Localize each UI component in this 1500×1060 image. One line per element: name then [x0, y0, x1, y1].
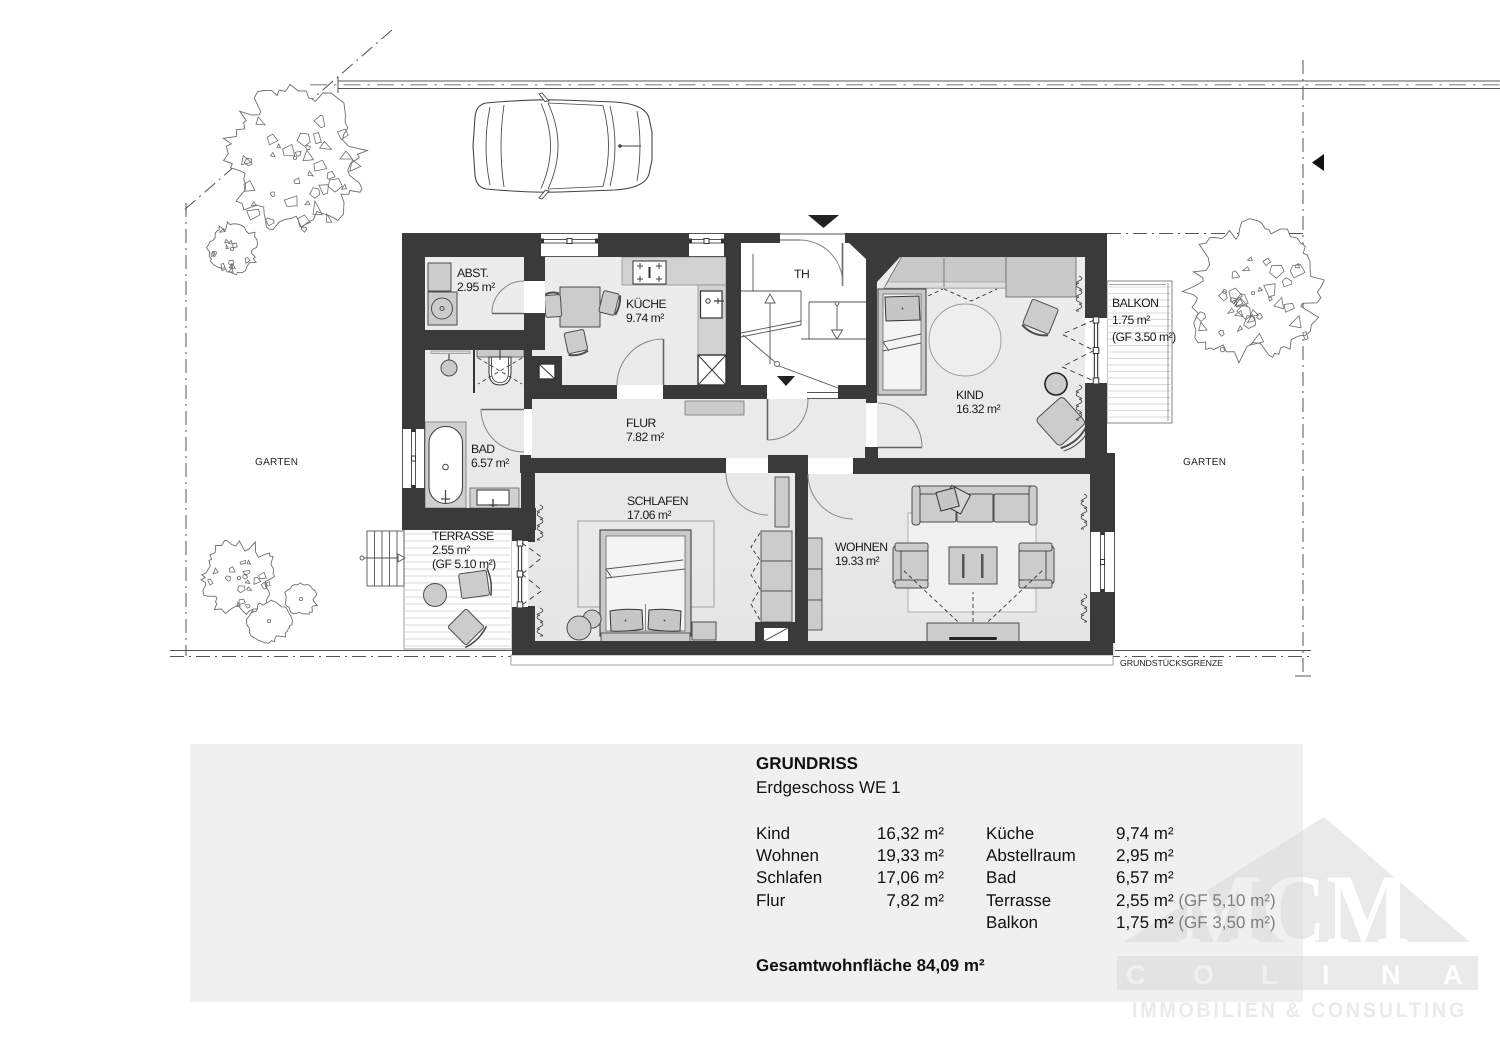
svg-text:9.74 m²: 9.74 m² [626, 311, 664, 325]
svg-text:SCHLAFEN: SCHLAFEN [627, 494, 688, 508]
svg-text:2,95 m²: 2,95 m² [1116, 846, 1174, 865]
svg-text:7.82 m²: 7.82 m² [626, 430, 664, 444]
svg-text:17,06 m²: 17,06 m² [877, 868, 944, 887]
svg-text:GRUNDRISS: GRUNDRISS [756, 754, 858, 773]
svg-text:(GF 3.50 m²): (GF 3.50 m²) [1112, 330, 1176, 344]
svg-text:6,57 m²: 6,57 m² [1116, 868, 1174, 887]
svg-text:2.95 m²: 2.95 m² [457, 280, 495, 294]
svg-text:Abstellraum: Abstellraum [986, 846, 1076, 865]
svg-text:Wohnen: Wohnen [756, 846, 819, 865]
svg-text:Bad: Bad [986, 868, 1016, 887]
svg-text:IMMOBILIEN & CONSULTING: IMMOBILIEN & CONSULTING [1132, 999, 1467, 1022]
svg-text:19.33 m²: 19.33 m² [835, 554, 880, 568]
svg-text:16.32 m²: 16.32 m² [956, 402, 1001, 416]
svg-text:TH: TH [794, 267, 809, 281]
svg-text:KIND: KIND [956, 388, 984, 402]
svg-text:GARTEN: GARTEN [255, 457, 298, 468]
svg-text:17.06 m²: 17.06 m² [627, 508, 672, 522]
svg-text:BALKON: BALKON [1112, 296, 1158, 310]
svg-text:9,74 m²: 9,74 m² [1116, 824, 1174, 843]
svg-text:Kind: Kind [756, 824, 790, 843]
svg-text:6.57 m²: 6.57 m² [471, 456, 509, 470]
svg-text:Küche: Küche [986, 824, 1034, 843]
svg-text:KÜCHE: KÜCHE [626, 297, 667, 311]
svg-text:GRUNDSTÜCKSGRENZE: GRUNDSTÜCKSGRENZE [1120, 658, 1223, 668]
svg-text:19,33 m²: 19,33 m² [877, 846, 944, 865]
svg-text:Erdgeschoss WE 1: Erdgeschoss WE 1 [756, 778, 901, 797]
svg-text:2.55 m²: 2.55 m² [432, 543, 470, 557]
svg-text:1,75 m² (GF 3,50 m²): 1,75 m² (GF 3,50 m²) [1116, 913, 1276, 932]
svg-text:WOHNEN: WOHNEN [835, 540, 888, 554]
svg-text:ABST.: ABST. [457, 266, 488, 280]
svg-text:2,55 m² (GF 5,10 m²): 2,55 m² (GF 5,10 m²) [1116, 891, 1276, 910]
svg-text:Balkon: Balkon [986, 913, 1038, 932]
svg-text:FLUR: FLUR [626, 416, 657, 430]
svg-text:Gesamtwohnfläche 84,09 m²: Gesamtwohnfläche 84,09 m² [756, 956, 985, 975]
svg-text:BAD: BAD [471, 442, 495, 456]
svg-text:GARTEN: GARTEN [1183, 457, 1226, 468]
svg-text:Schlafen: Schlafen [756, 868, 822, 887]
svg-text:1.75 m²: 1.75 m² [1112, 313, 1150, 327]
svg-text:Terrasse: Terrasse [986, 891, 1051, 910]
svg-text:Flur: Flur [756, 891, 786, 910]
svg-text:(GF 5.10 m²): (GF 5.10 m²) [432, 557, 496, 571]
svg-text:16,32 m²: 16,32 m² [877, 824, 944, 843]
svg-text:TERRASSE: TERRASSE [432, 529, 494, 543]
svg-text:7,82 m²: 7,82 m² [886, 891, 944, 910]
